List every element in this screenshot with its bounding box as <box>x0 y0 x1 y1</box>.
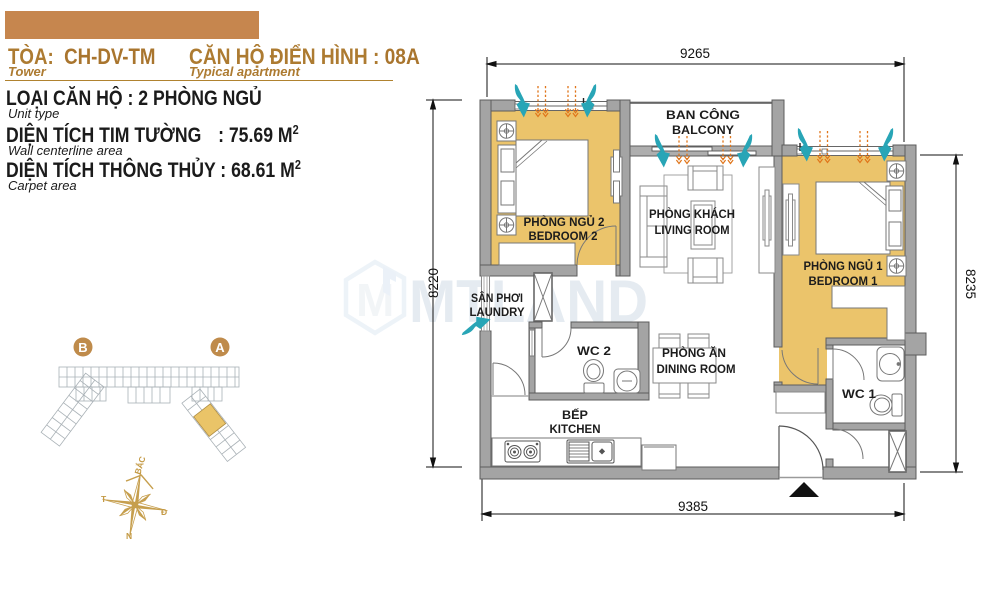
svg-text:8235: 8235 <box>963 269 978 299</box>
svg-text:KITCHEN: KITCHEN <box>550 422 601 436</box>
svg-text:A: A <box>215 340 225 355</box>
svg-text:WC 1: WC 1 <box>842 387 876 401</box>
svg-text:BAN CÔNG: BAN CÔNG <box>666 107 740 122</box>
svg-text:BẮC: BẮC <box>132 455 147 476</box>
svg-text:8220: 8220 <box>426 268 441 298</box>
svg-text:WC 2: WC 2 <box>577 344 611 358</box>
svg-text:LIVING ROOM: LIVING ROOM <box>655 223 730 237</box>
svg-text:LAUNDRY: LAUNDRY <box>470 305 525 319</box>
svg-text:T: T <box>101 494 107 504</box>
svg-text:PHÒNG NGỦ 2: PHÒNG NGỦ 2 <box>524 214 605 229</box>
svg-text:DINING ROOM: DINING ROOM <box>657 362 736 376</box>
svg-text:B: B <box>78 340 87 355</box>
svg-text:PHÒNG NGỦ 1: PHÒNG NGỦ 1 <box>804 258 883 273</box>
svg-text:BALCONY: BALCONY <box>672 123 734 137</box>
svg-text:BEDROOM 1: BEDROOM 1 <box>809 274 878 288</box>
svg-text:SÂN PHƠI: SÂN PHƠI <box>471 290 523 305</box>
svg-text:9265: 9265 <box>680 46 710 61</box>
svg-text:PHÒNG ĂN: PHÒNG ĂN <box>662 345 726 360</box>
svg-text:BẾP: BẾP <box>562 407 588 422</box>
svg-text:BEDROOM 2: BEDROOM 2 <box>529 229 598 243</box>
svg-text:PHÒNG KHÁCH: PHÒNG KHÁCH <box>649 206 735 221</box>
svg-text:9385: 9385 <box>678 499 708 514</box>
svg-text:N: N <box>126 531 132 541</box>
svg-text:Đ: Đ <box>161 507 167 517</box>
